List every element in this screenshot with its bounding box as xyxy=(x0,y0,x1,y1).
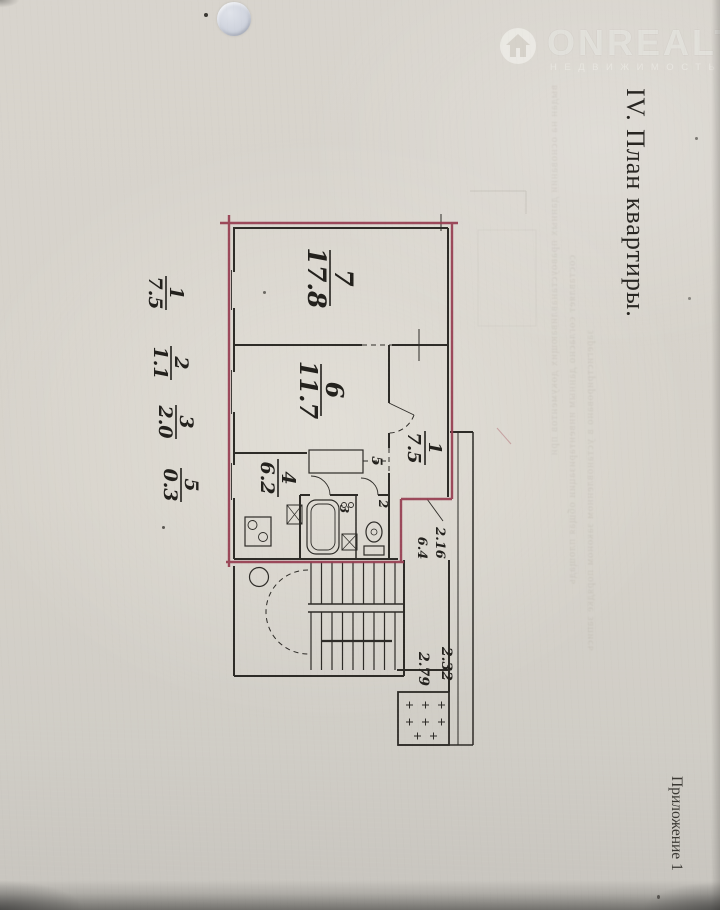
svg-text:1: 1 xyxy=(424,442,445,455)
svg-text:1.1: 1.1 xyxy=(149,346,171,379)
svg-text:4: 4 xyxy=(277,471,299,484)
closet-label: 5 xyxy=(368,456,384,466)
svg-text:7.5: 7.5 xyxy=(403,432,424,463)
side-note: 2.16 6.4 xyxy=(414,526,447,559)
svg-text:2.32: 2.32 xyxy=(438,646,454,681)
hallway-label: 1 7.5 xyxy=(403,431,445,465)
svg-text:5: 5 xyxy=(368,456,384,466)
svg-text:7.5: 7.5 xyxy=(144,276,166,309)
bath-label: 3 xyxy=(337,505,351,513)
floor-plan: 7 17.8 6 11.7 4 6.2 1 7.5 xyxy=(0,0,720,910)
svg-text:3: 3 xyxy=(175,415,197,428)
room-6-label: 6 11.7 xyxy=(294,361,349,420)
svg-text:11.7: 11.7 xyxy=(294,361,323,420)
scan-shadow-topleft xyxy=(0,0,26,10)
svg-text:6: 6 xyxy=(320,382,349,399)
svg-text:17.8: 17.8 xyxy=(302,248,331,309)
washbasin xyxy=(342,534,357,550)
scanned-page: ONREALT НЕДВИЖИМОСТЬ IV. План квартиры. … xyxy=(0,0,720,910)
margin-fractions: 1 7.5 2 1.1 3 2.0 5 0.3 xyxy=(144,276,202,502)
stove xyxy=(245,517,271,546)
scan-shadow-bottom-left xyxy=(0,850,190,910)
staircase xyxy=(308,562,404,670)
svg-text:2: 2 xyxy=(170,355,192,369)
elevator-shaft xyxy=(398,692,449,745)
svg-text:2.16: 2.16 xyxy=(432,526,447,559)
svg-text:0.3: 0.3 xyxy=(159,468,181,501)
scan-shadow-bottom-right xyxy=(560,855,720,910)
kitchen-label: 4 6.2 xyxy=(256,459,299,497)
svg-text:1: 1 xyxy=(165,286,187,299)
pencil-marks xyxy=(470,191,536,444)
lift-note: 2.32 2.79 xyxy=(415,646,454,686)
room-7-label: 7 17.8 xyxy=(302,248,358,309)
svg-text:2.79: 2.79 xyxy=(415,651,431,686)
svg-text:3: 3 xyxy=(337,505,351,513)
svg-text:5: 5 xyxy=(180,478,202,491)
toilet xyxy=(364,522,384,555)
svg-text:2: 2 xyxy=(376,499,390,508)
svg-text:2.0: 2.0 xyxy=(154,404,176,438)
svg-text:7: 7 xyxy=(329,269,358,287)
wc-label: 2 xyxy=(376,499,390,508)
garbage-chute xyxy=(250,568,269,587)
svg-text:6.4: 6.4 xyxy=(414,537,429,560)
scan-shadow-right xyxy=(711,0,720,910)
svg-text:6.2: 6.2 xyxy=(256,461,278,494)
